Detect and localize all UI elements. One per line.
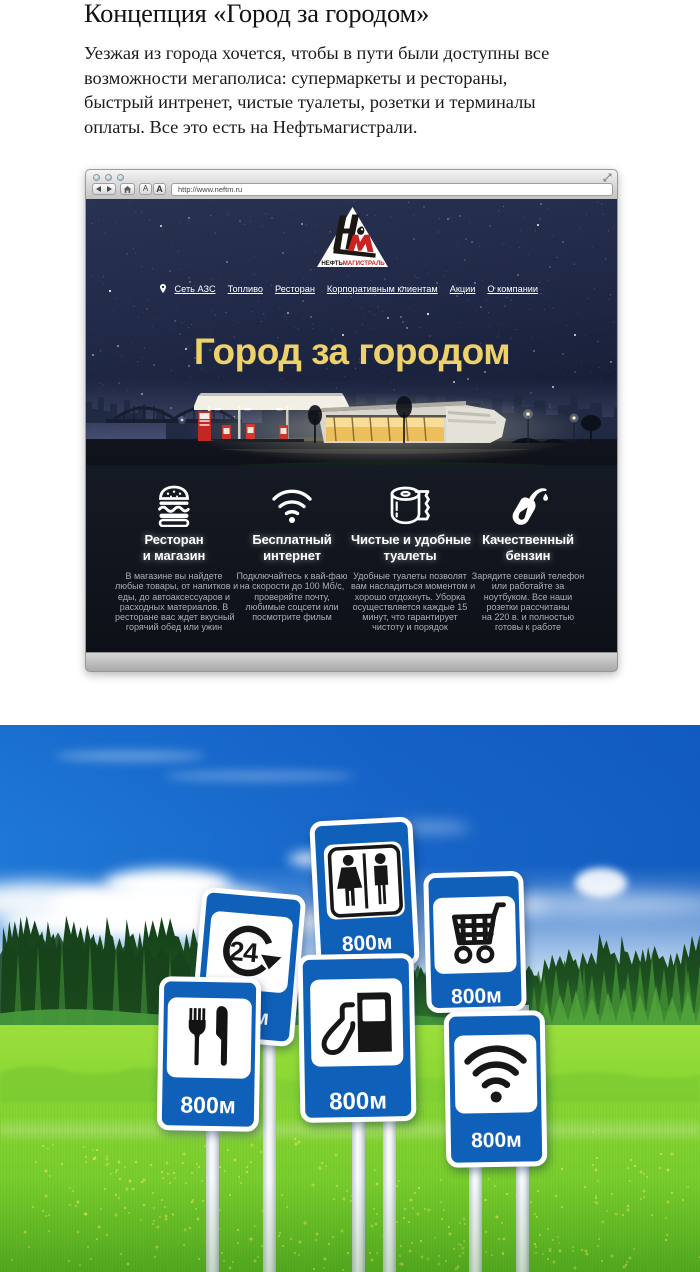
svg-text:24: 24: [228, 936, 260, 968]
svg-text:НЕФТЬМАГИСТРАЛЬ: НЕФТЬМАГИСТРАЛЬ: [321, 260, 385, 267]
